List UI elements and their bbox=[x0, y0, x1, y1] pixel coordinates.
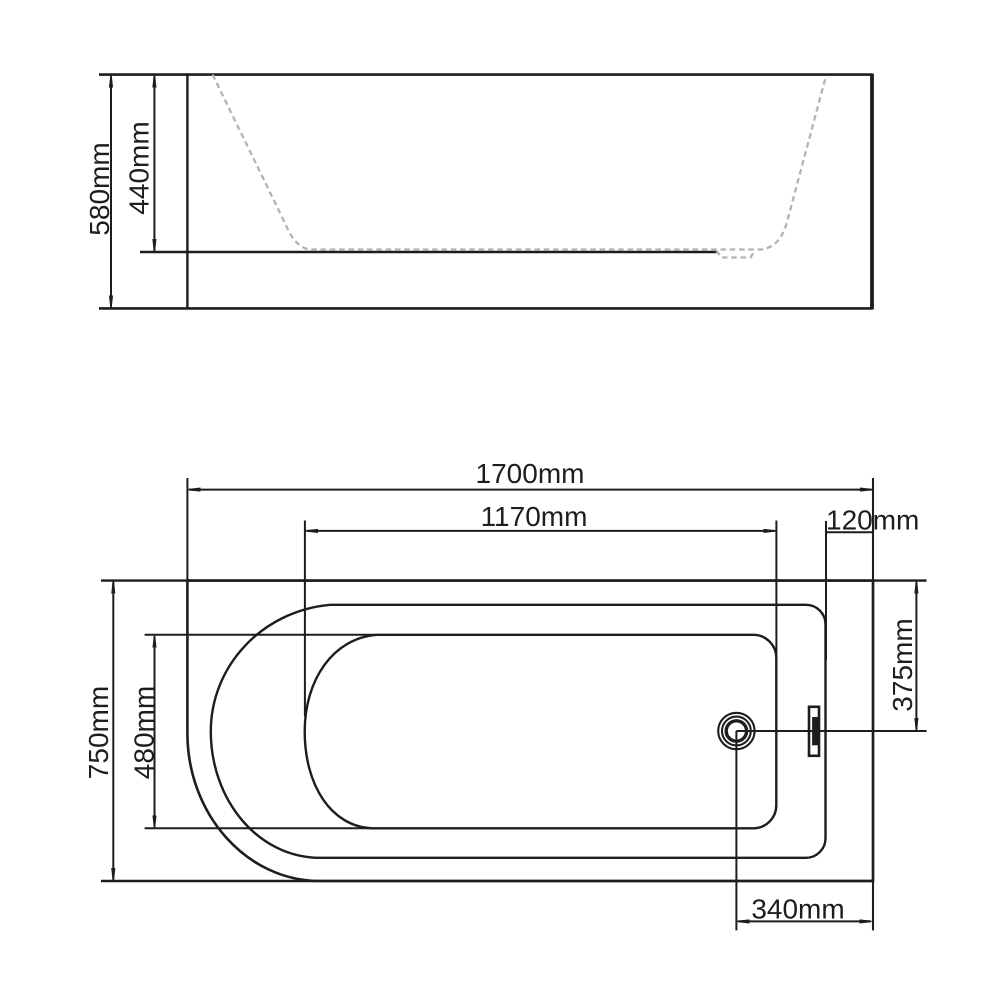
svg-text:1170mm: 1170mm bbox=[481, 501, 588, 532]
svg-text:120mm: 120mm bbox=[826, 505, 919, 536]
svg-text:580mm: 580mm bbox=[84, 142, 115, 235]
svg-text:750mm: 750mm bbox=[83, 686, 114, 779]
svg-text:480mm: 480mm bbox=[129, 686, 160, 779]
svg-text:340mm: 340mm bbox=[751, 894, 844, 925]
svg-text:1700mm: 1700mm bbox=[476, 458, 585, 489]
svg-text:375mm: 375mm bbox=[887, 618, 918, 711]
svg-text:440mm: 440mm bbox=[124, 121, 155, 214]
